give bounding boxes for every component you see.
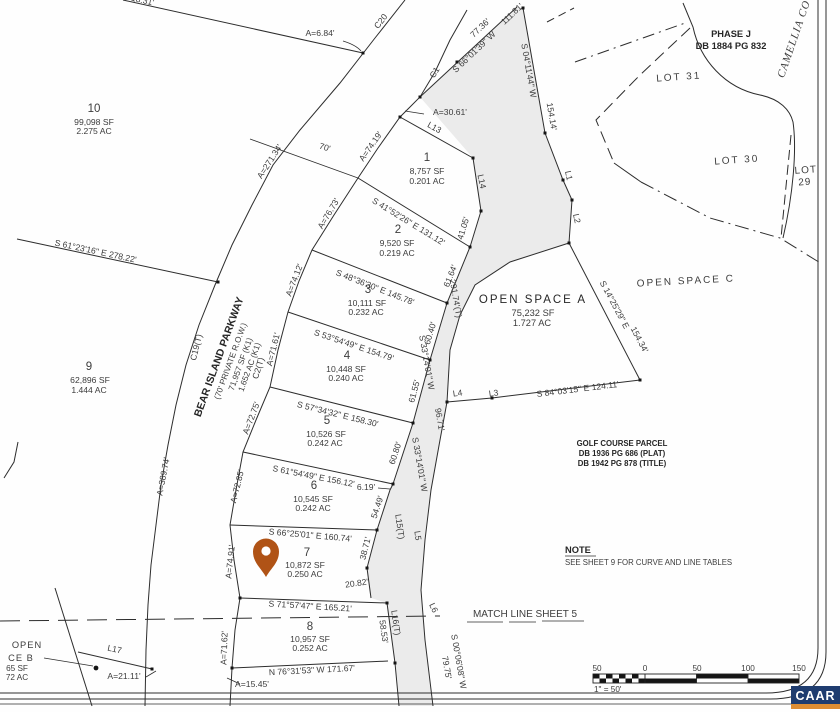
arc-a1545: A=15.45' <box>235 679 269 689</box>
lot9-ac: 1.444 AC <box>71 385 106 395</box>
lot1-ac: 0.201 AC <box>409 176 444 186</box>
caar-badge-underline <box>791 704 840 709</box>
scale-tick-0: 0 <box>643 664 648 673</box>
arc-lot2: A=76.73' <box>315 196 341 231</box>
open-space-b-ac: 72 AC <box>6 673 28 682</box>
golf-parcel-l3: DB 1942 PG 878 (TITLE) <box>578 459 667 468</box>
arc-lot6: A=72.85' <box>228 468 246 504</box>
lot3-ac: 0.232 AC <box>348 307 383 317</box>
phase-j-db: DB 1884 PG 832 <box>696 41 767 51</box>
plat-svg: 1 8,757 SF 0.201 AC 2 9,520 SF 0.219 AC … <box>0 0 840 712</box>
arc-lot3: A=74.12' <box>283 262 305 298</box>
lot4-ac: 0.240 AC <box>328 373 363 383</box>
lot2-number: 2 <box>395 224 401 236</box>
lot10-ac: 2.275 AC <box>76 126 111 136</box>
location-pin-hole <box>261 546 270 555</box>
seg-2082: 20.82' <box>344 576 369 589</box>
lot8-number: 8 <box>307 621 313 633</box>
seg-4105: 41.05' <box>455 215 471 240</box>
bearing-d34: S 53°54'49" E 154.79' <box>313 327 396 363</box>
lot1-number: 1 <box>424 152 430 164</box>
lot31-label: LOT 31 <box>656 70 702 84</box>
open-space-b-l1: OPEN <box>12 640 42 650</box>
lot5-ac: 0.242 AC <box>307 438 342 448</box>
arc-a38974: A=389.74' <box>154 456 171 496</box>
lot9-number: 9 <box>86 361 92 373</box>
lot8-ac: 0.252 AC <box>292 643 327 653</box>
curve-c1: C1 <box>427 65 441 80</box>
scale-ratio: 1" = 50' <box>594 685 622 694</box>
lot4-number: 4 <box>344 350 351 362</box>
lot7-ac: 0.250 AC <box>287 569 322 579</box>
open-space-a-sf: 75,232 SF <box>512 308 555 318</box>
arc-a3061: A=30.61' <box>433 107 467 117</box>
golf-parcel-l1: GOLF COURSE PARCEL <box>577 439 668 448</box>
open-space-a-title: OPEN SPACE A <box>479 294 587 306</box>
arc-a2111: A=21.11' <box>107 671 141 681</box>
lot2-ac: 0.219 AC <box>379 248 414 258</box>
arc-lot5: A=72.75' <box>240 400 262 436</box>
lot30-label: LOT 30 <box>714 153 760 167</box>
camellia-court-label: CAMELLIA CO <box>775 0 813 79</box>
lot7-number: 7 <box>304 547 310 559</box>
arc-lot7: A=74.91' <box>223 544 237 579</box>
scale-tick-50l: 50 <box>592 664 602 673</box>
lot9-sf: 62,896 SF <box>70 375 110 385</box>
arc-lot1: A=74.19' <box>357 129 385 163</box>
match-line-label: MATCH LINE SHEET 5 <box>473 609 578 620</box>
seg-619: 6.19' <box>357 482 376 492</box>
arc-a27134: A=271.34' <box>255 142 285 180</box>
note-body: SEE SHEET 9 FOR CURVE AND LINE TABLES <box>565 558 732 567</box>
open-space-a-ac: 1.727 AC <box>513 318 552 328</box>
bearing-d78: S 71°57'47" E 165.21' <box>268 598 352 613</box>
bearing-s840315e: S 84°03'15" E 124.11' <box>536 379 620 399</box>
location-pin[interactable] <box>253 539 279 578</box>
scale-tick-50r: 50 <box>692 664 702 673</box>
line-l17: L17 <box>107 643 123 656</box>
location-pin-body[interactable] <box>253 539 279 578</box>
caar-badge: CAAR <box>791 686 840 709</box>
arc-lot4: A=71.61' <box>264 331 282 367</box>
dist-15414: 154.14' <box>545 102 560 132</box>
line-l3: L3 <box>488 387 499 398</box>
lot10-number: 10 <box>88 103 101 115</box>
road-width-70: 70' <box>318 141 332 154</box>
open-space-b-sf: 65 SF <box>6 664 28 673</box>
bearing-top-fragment: 18.31' <box>130 0 155 8</box>
dist-7975: 79.75' <box>440 655 454 680</box>
lot29-label-l2: 29 <box>798 177 812 189</box>
scale-tick-100: 100 <box>741 664 755 673</box>
scale-bar: 50 0 50 100 150 1" = 50' <box>592 664 806 694</box>
golf-parcel-l2: DB 1936 PG 686 (PLAT) <box>579 449 666 458</box>
bearing-s000608w: S 00°06'08" W <box>449 633 469 690</box>
phase-j-title: PHASE J <box>711 29 751 39</box>
plat-map: 1 8,757 SF 0.201 AC 2 9,520 SF 0.219 AC … <box>0 0 840 712</box>
open-space-b-l2: CE B <box>8 653 34 663</box>
caar-logo-text: CAAR <box>795 689 835 703</box>
arc-a684: A=6.84' <box>305 28 334 38</box>
curve-c20: C20 <box>372 12 390 31</box>
dist-15434: 154.34' <box>629 325 651 355</box>
bearing-s142529e: S 14°25'29" E <box>598 279 632 331</box>
lot29-label-l1: LOT <box>794 164 817 177</box>
curve-c19t: C19(T) <box>188 333 204 361</box>
lot6-ac: 0.242 AC <box>295 503 330 513</box>
line-l5: L5 <box>412 530 423 541</box>
phase-boundaries-dashed <box>547 3 822 264</box>
arc-lot8: A=71.62' <box>218 630 229 665</box>
scale-tick-150: 150 <box>792 664 806 673</box>
line-l6: L6 <box>427 601 440 614</box>
lot6-number: 6 <box>311 480 317 492</box>
line-l2: L2 <box>571 213 583 225</box>
seg-5853: 58.53' <box>377 619 390 644</box>
line-l4: L4 <box>452 387 463 398</box>
note-title: NOTE <box>565 545 591 555</box>
open-space-c-title: OPEN SPACE C <box>637 273 736 289</box>
lot2-sf: 9,520 SF <box>380 238 415 248</box>
bearing-lot8-south: N 76°31'53" W 171.67' <box>269 663 356 678</box>
line-l1: L1 <box>563 170 575 182</box>
lot1-sf: 8,757 SF <box>410 166 445 176</box>
scale-checker <box>593 674 645 683</box>
bearing-lot9-north: S 61°23'16" E 278.22' <box>54 238 138 265</box>
